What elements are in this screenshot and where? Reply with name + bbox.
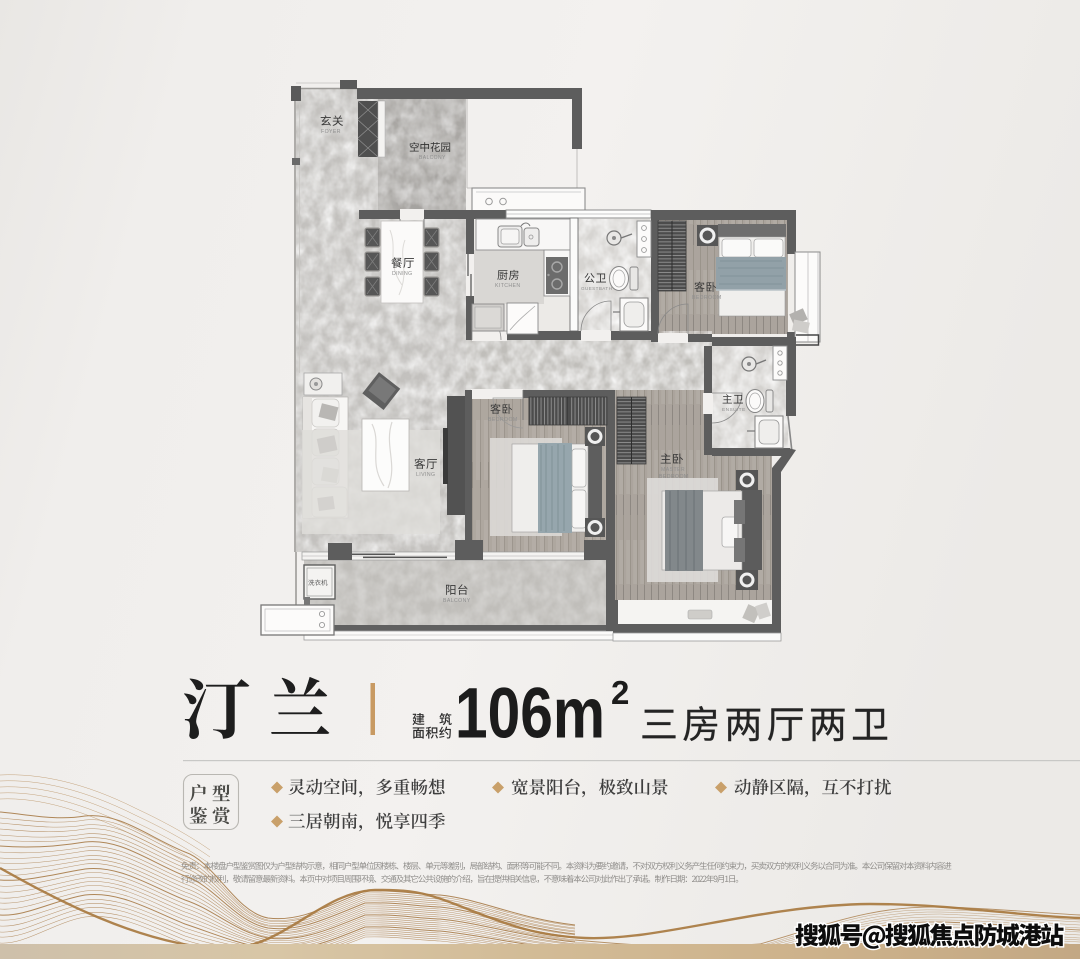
svg-text:FOYER: FOYER [321, 129, 341, 135]
svg-text:DINING: DINING [392, 271, 413, 277]
svg-text:ENSUITE: ENSUITE [722, 407, 746, 413]
svg-text:GUESTBATH: GUESTBATH [581, 286, 612, 291]
svg-text:BEDROOM: BEDROOM [659, 474, 689, 480]
svg-text:BALCONY: BALCONY [443, 598, 471, 604]
svg-text:MASTER: MASTER [661, 467, 685, 473]
svg-text:106m: 106m [455, 675, 605, 754]
svg-text:BALCONY: BALCONY [419, 155, 446, 161]
svg-text:KITCHEN: KITCHEN [495, 283, 521, 289]
svg-text:BEDROOM: BEDROOM [488, 417, 518, 423]
svg-text:2: 2 [611, 674, 629, 711]
svg-text:BEDROOM: BEDROOM [692, 295, 722, 301]
svg-text:LIVING: LIVING [416, 472, 435, 478]
